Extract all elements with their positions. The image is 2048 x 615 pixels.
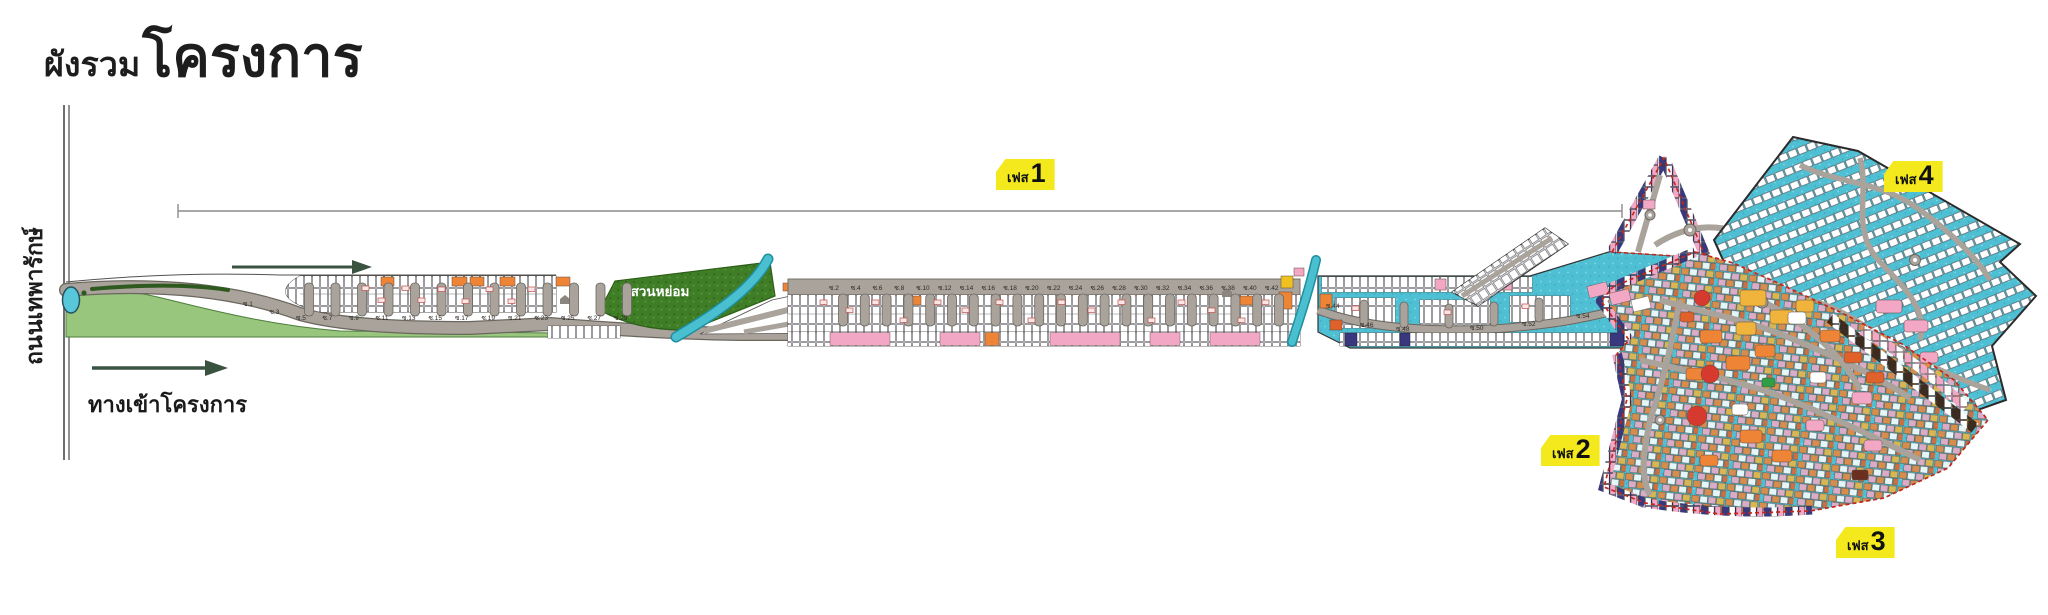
soi-label: ซ.19 — [482, 315, 496, 322]
soi-label: ซ.48 — [1396, 326, 1410, 333]
garden-label: สวนหย่อม — [631, 284, 690, 299]
entrance-label: ทางเข้าโครงการ — [88, 391, 247, 417]
soi-label: ซ.21 — [508, 315, 522, 322]
soi-label: ซ.40 — [1243, 285, 1257, 292]
soi-label: ซ.16 — [982, 285, 996, 292]
soi-label: ซ.2 — [829, 285, 839, 292]
soi-label: ซ.7 — [323, 315, 333, 322]
soi-label: ซ.22 — [1047, 285, 1061, 292]
soi-label: ซ.11 — [376, 315, 389, 322]
house-icon — [560, 295, 570, 304]
soi-label: ซ.4 — [851, 285, 861, 292]
phase1-tag-prefix: เฟส — [1007, 167, 1029, 188]
soi-label: ซ.17 — [455, 315, 469, 322]
soi-label: ซ.34 — [1178, 285, 1192, 292]
phase3-tag-number: 3 — [1871, 528, 1886, 555]
soi-label: ซ.25 — [561, 315, 575, 322]
phase1-tag: เฟส 1 — [996, 159, 1055, 190]
thepharak-road: ถนนเทพารักษ์ — [21, 105, 69, 460]
phase2-tag: เฟส 2 — [1541, 435, 1600, 466]
soi-label: ซ.24 — [1069, 285, 1083, 292]
soi-label: ซ.18 — [1003, 285, 1017, 292]
soi-label: ซ.13 — [402, 315, 416, 322]
soi-label: ซ.20 — [1025, 285, 1039, 292]
phase3-tag: เฟส 3 — [1836, 527, 1895, 558]
soi-label: ซ.28 — [1112, 285, 1126, 292]
arrow-into-strip — [232, 260, 372, 274]
soi-label: ซ.5 — [296, 315, 306, 322]
soi-label: ซ.50 — [1470, 325, 1484, 332]
soi-label: ซ.46 — [1360, 322, 1374, 329]
soi-label: ซ.29 — [614, 315, 628, 322]
soi-label: ซ.6 — [873, 285, 883, 292]
soi-label: ซ.38 — [1221, 285, 1235, 292]
soi-label: ซ.15 — [429, 315, 443, 322]
soi-label: ซ.9 — [349, 315, 359, 322]
site-plan-map: ถนนเทพารักษ์ — [0, 0, 2048, 615]
soi-label: ซ.27 — [588, 315, 602, 322]
soi-label: ซ.42 — [1265, 285, 1279, 292]
phase4-tag: เฟส 4 — [1884, 161, 1943, 192]
soi-label: ซ.1 — [243, 301, 253, 308]
soi-label: ซ.32 — [1156, 285, 1170, 292]
phase3-tag-prefix: เฟส — [1847, 535, 1869, 556]
soi-label: ซ.36 — [1200, 285, 1214, 292]
soi-label: ซ.12 — [938, 285, 952, 292]
soi-label: ซ.44 — [1326, 303, 1340, 310]
soi-label: ซ.8 — [894, 285, 904, 292]
arrow-entrance — [92, 360, 228, 376]
soi-label: ซ.10 — [916, 285, 930, 292]
soi-label: ซ.23 — [535, 315, 549, 322]
phase2-tag-number: 2 — [1576, 436, 1591, 463]
soi-label: ซ.30 — [1134, 285, 1148, 292]
phase1-dimension-line — [178, 204, 1622, 218]
soi-label: ซ.3 — [270, 309, 280, 316]
phase1-tag-number: 1 — [1031, 160, 1046, 187]
master-plan-page: ผังรวม โครงการ — [0, 0, 2048, 615]
phase4-tag-number: 4 — [1919, 162, 1934, 189]
soi-label: ซ.14 — [960, 285, 974, 292]
soi-label: ซ.52 — [1522, 321, 1536, 328]
phase2-tag-prefix: เฟส — [1552, 443, 1574, 464]
phase4-tag-prefix: เฟส — [1895, 169, 1917, 190]
soi-label: ซ.26 — [1091, 285, 1105, 292]
entrance-pond — [63, 287, 80, 313]
thepharak-road-label: ถนนเทพารักษ์ — [21, 227, 47, 365]
soi-label: ซ.54 — [1576, 313, 1590, 320]
